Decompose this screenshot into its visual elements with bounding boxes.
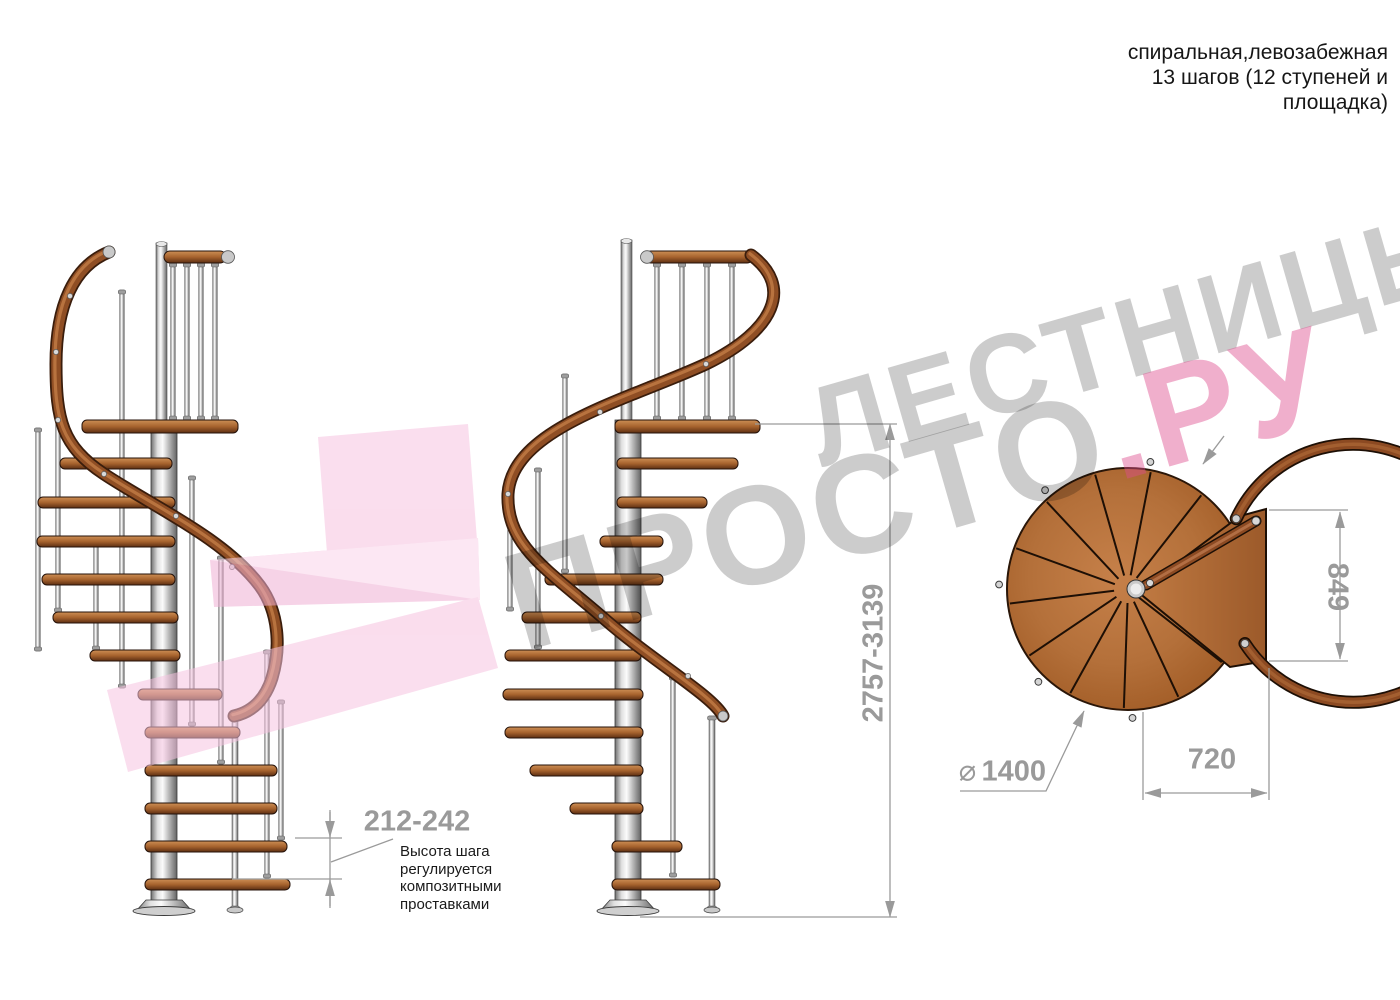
step-leader: [331, 839, 393, 862]
dim-label-landing-width: 720: [1188, 744, 1236, 777]
diameter-value: 1400: [981, 756, 1046, 788]
note-line-3: композитными: [400, 878, 502, 896]
dim-label-step-height: 212-242: [364, 806, 470, 839]
note-line-1: Высота шага: [400, 843, 502, 861]
technical-drawing-canvas: [0, 0, 1400, 1000]
note-line-4: проставками: [400, 896, 502, 914]
title-line-1: спиральная,левозабежная: [1128, 40, 1388, 65]
title-line-3: площадка): [1128, 90, 1388, 115]
drawing-page: { "header": { "lines": ["спиральная,лево…: [0, 0, 1400, 1000]
side-view-center-staircase: [503, 239, 774, 916]
title-line-2: 13 шагов (12 ступеней и: [1128, 65, 1388, 90]
dim-label-total-height: 2757-3139: [858, 584, 891, 723]
note-line-2: регулируется: [400, 861, 502, 879]
handrail-leader: [1203, 436, 1224, 464]
title-block: спиральная,левозабежная 13 шагов (12 сту…: [1128, 40, 1388, 115]
dim-label-diameter: ⌀1400: [958, 754, 1046, 789]
dim-label-landing-depth: 849: [1321, 563, 1354, 611]
diameter-symbol: ⌀: [958, 756, 975, 788]
step-height-note: Высота шага регулируется композитными пр…: [400, 843, 502, 913]
